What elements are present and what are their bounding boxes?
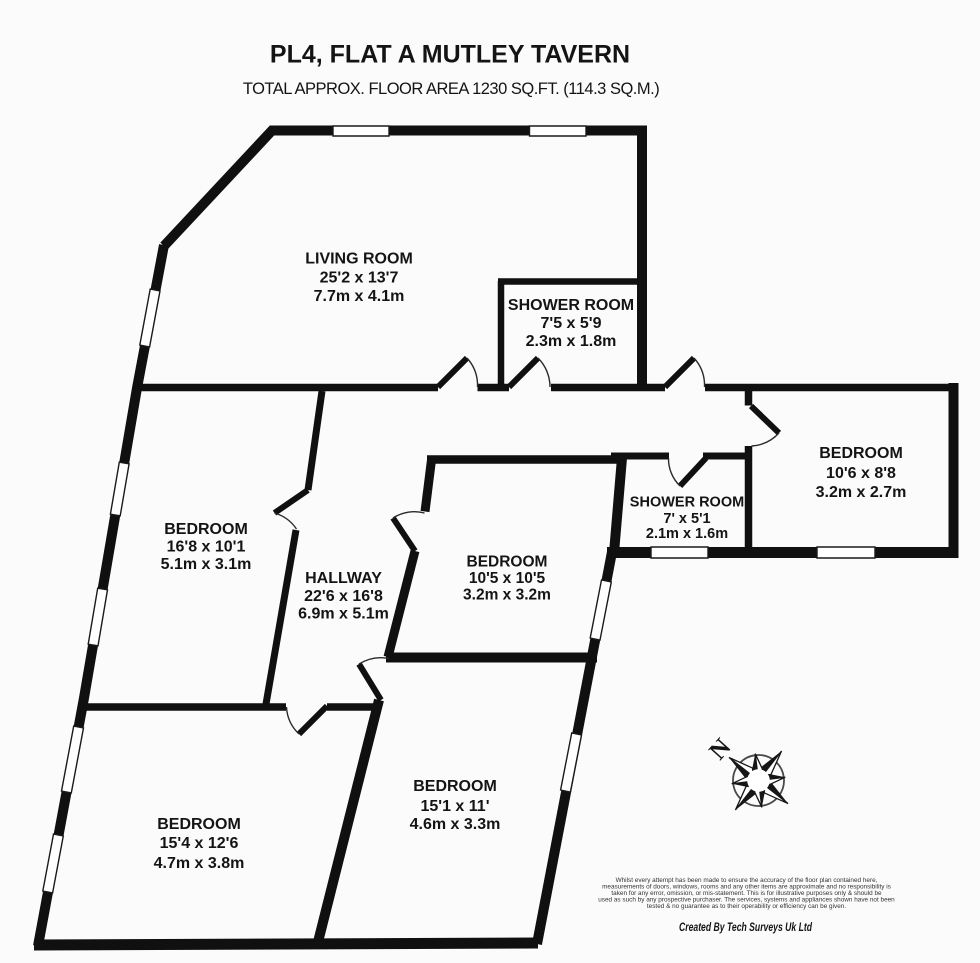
svg-text:BEDROOM: BEDROOM xyxy=(467,554,548,571)
svg-text:2.3m x 1.8m: 2.3m x 1.8m xyxy=(526,333,617,350)
svg-text:7'5 x 5'9: 7'5 x 5'9 xyxy=(541,315,602,332)
svg-text:PL4, FLAT A MUTLEY TAVERN: PL4, FLAT A MUTLEY TAVERN xyxy=(270,41,630,69)
svg-text:5.1m x 3.1m: 5.1m x 3.1m xyxy=(161,556,252,573)
svg-text:tested & no guarantee as to th: tested & no guarantee as to their operab… xyxy=(647,903,846,910)
svg-text:HALLWAY: HALLWAY xyxy=(305,570,382,587)
svg-text:BEDROOM: BEDROOM xyxy=(819,445,903,462)
svg-text:6.9m x 5.1m: 6.9m x 5.1m xyxy=(298,606,389,623)
svg-text:3.2m x 2.7m: 3.2m x 2.7m xyxy=(816,484,907,501)
svg-text:25'2 x 13'7: 25'2 x 13'7 xyxy=(320,270,399,287)
svg-text:22'6 x 16'8: 22'6 x 16'8 xyxy=(304,588,383,605)
svg-text:BEDROOM: BEDROOM xyxy=(157,816,241,833)
svg-text:TOTAL APPROX. FLOOR AREA 1230: TOTAL APPROX. FLOOR AREA 1230 SQ.FT. (11… xyxy=(243,80,659,98)
svg-text:BEDROOM: BEDROOM xyxy=(164,521,248,538)
svg-text:10'6 x 8'8: 10'6 x 8'8 xyxy=(826,465,896,482)
svg-text:SHOWER ROOM: SHOWER ROOM xyxy=(630,495,744,511)
svg-text:7' x 5'1: 7' x 5'1 xyxy=(663,511,710,527)
svg-text:3.2m x 3.2m: 3.2m x 3.2m xyxy=(463,587,551,604)
svg-text:BEDROOM: BEDROOM xyxy=(413,778,497,795)
svg-text:15'1 x 11': 15'1 x 11' xyxy=(420,798,489,815)
svg-text:4.7m x 3.8m: 4.7m x 3.8m xyxy=(154,855,245,872)
svg-text:2.1m x 1.6m: 2.1m x 1.6m xyxy=(646,526,728,542)
svg-text:4.6m x 3.3m: 4.6m x 3.3m xyxy=(410,816,501,833)
svg-text:LIVING ROOM: LIVING ROOM xyxy=(305,251,413,268)
svg-text:SHOWER ROOM: SHOWER ROOM xyxy=(508,297,634,314)
svg-text:15'4 x 12'6: 15'4 x 12'6 xyxy=(160,835,239,852)
svg-text:16'8 x 10'1: 16'8 x 10'1 xyxy=(167,539,246,556)
svg-text:7.7m x 4.1m: 7.7m x 4.1m xyxy=(314,288,405,305)
svg-text:10'5 x 10'5: 10'5 x 10'5 xyxy=(469,570,546,587)
svg-text:Created By Tech Surveys Uk Ltd: Created By Tech Surveys Uk Ltd xyxy=(679,920,812,934)
